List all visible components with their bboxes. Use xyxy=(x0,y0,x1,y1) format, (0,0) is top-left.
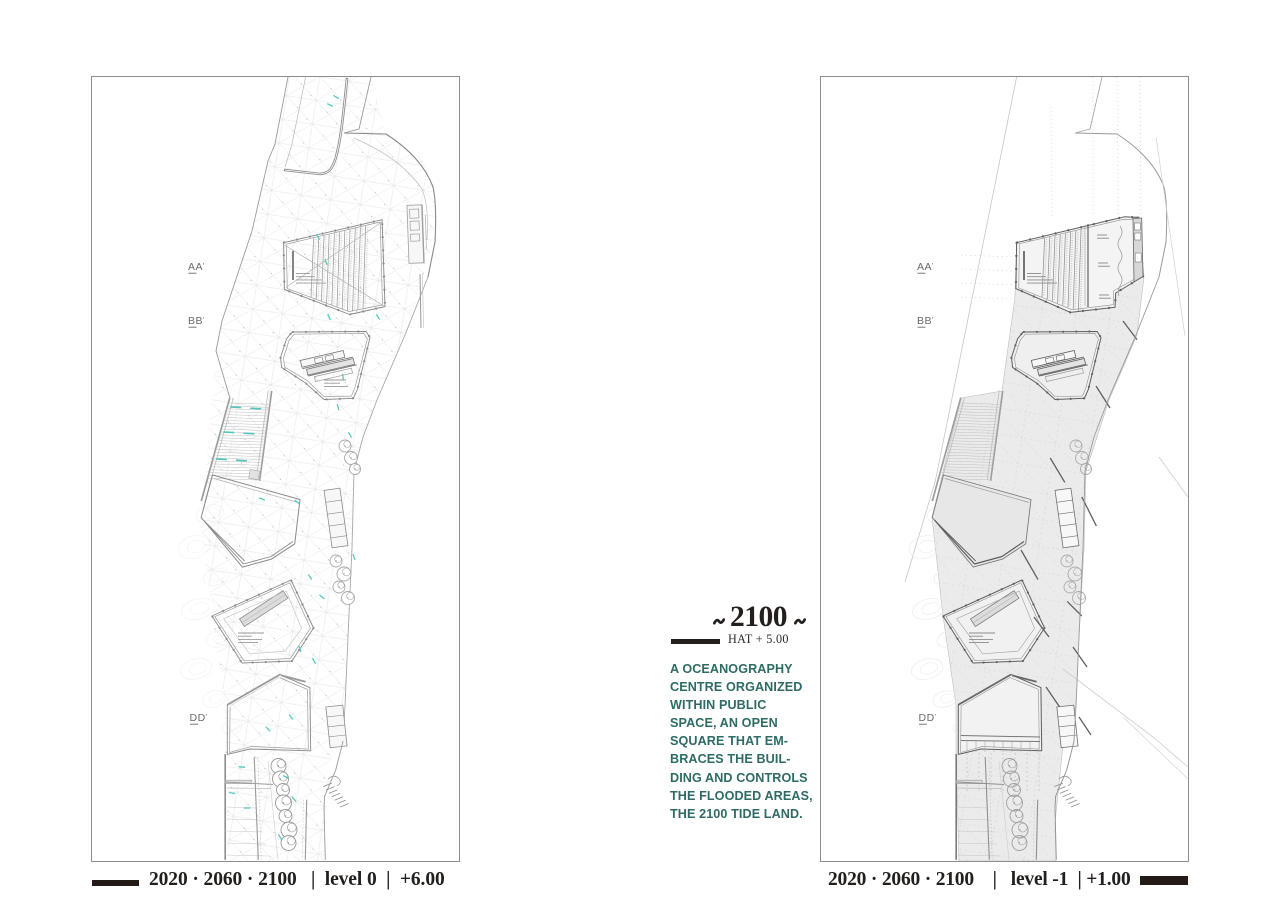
svg-text:AA': AA' xyxy=(917,261,934,273)
svg-text:DD': DD' xyxy=(919,712,937,724)
svg-text:BB': BB' xyxy=(188,315,205,327)
svg-text:DD': DD' xyxy=(190,712,208,724)
svg-text:BB': BB' xyxy=(917,315,934,327)
svg-text:AA': AA' xyxy=(188,261,205,273)
